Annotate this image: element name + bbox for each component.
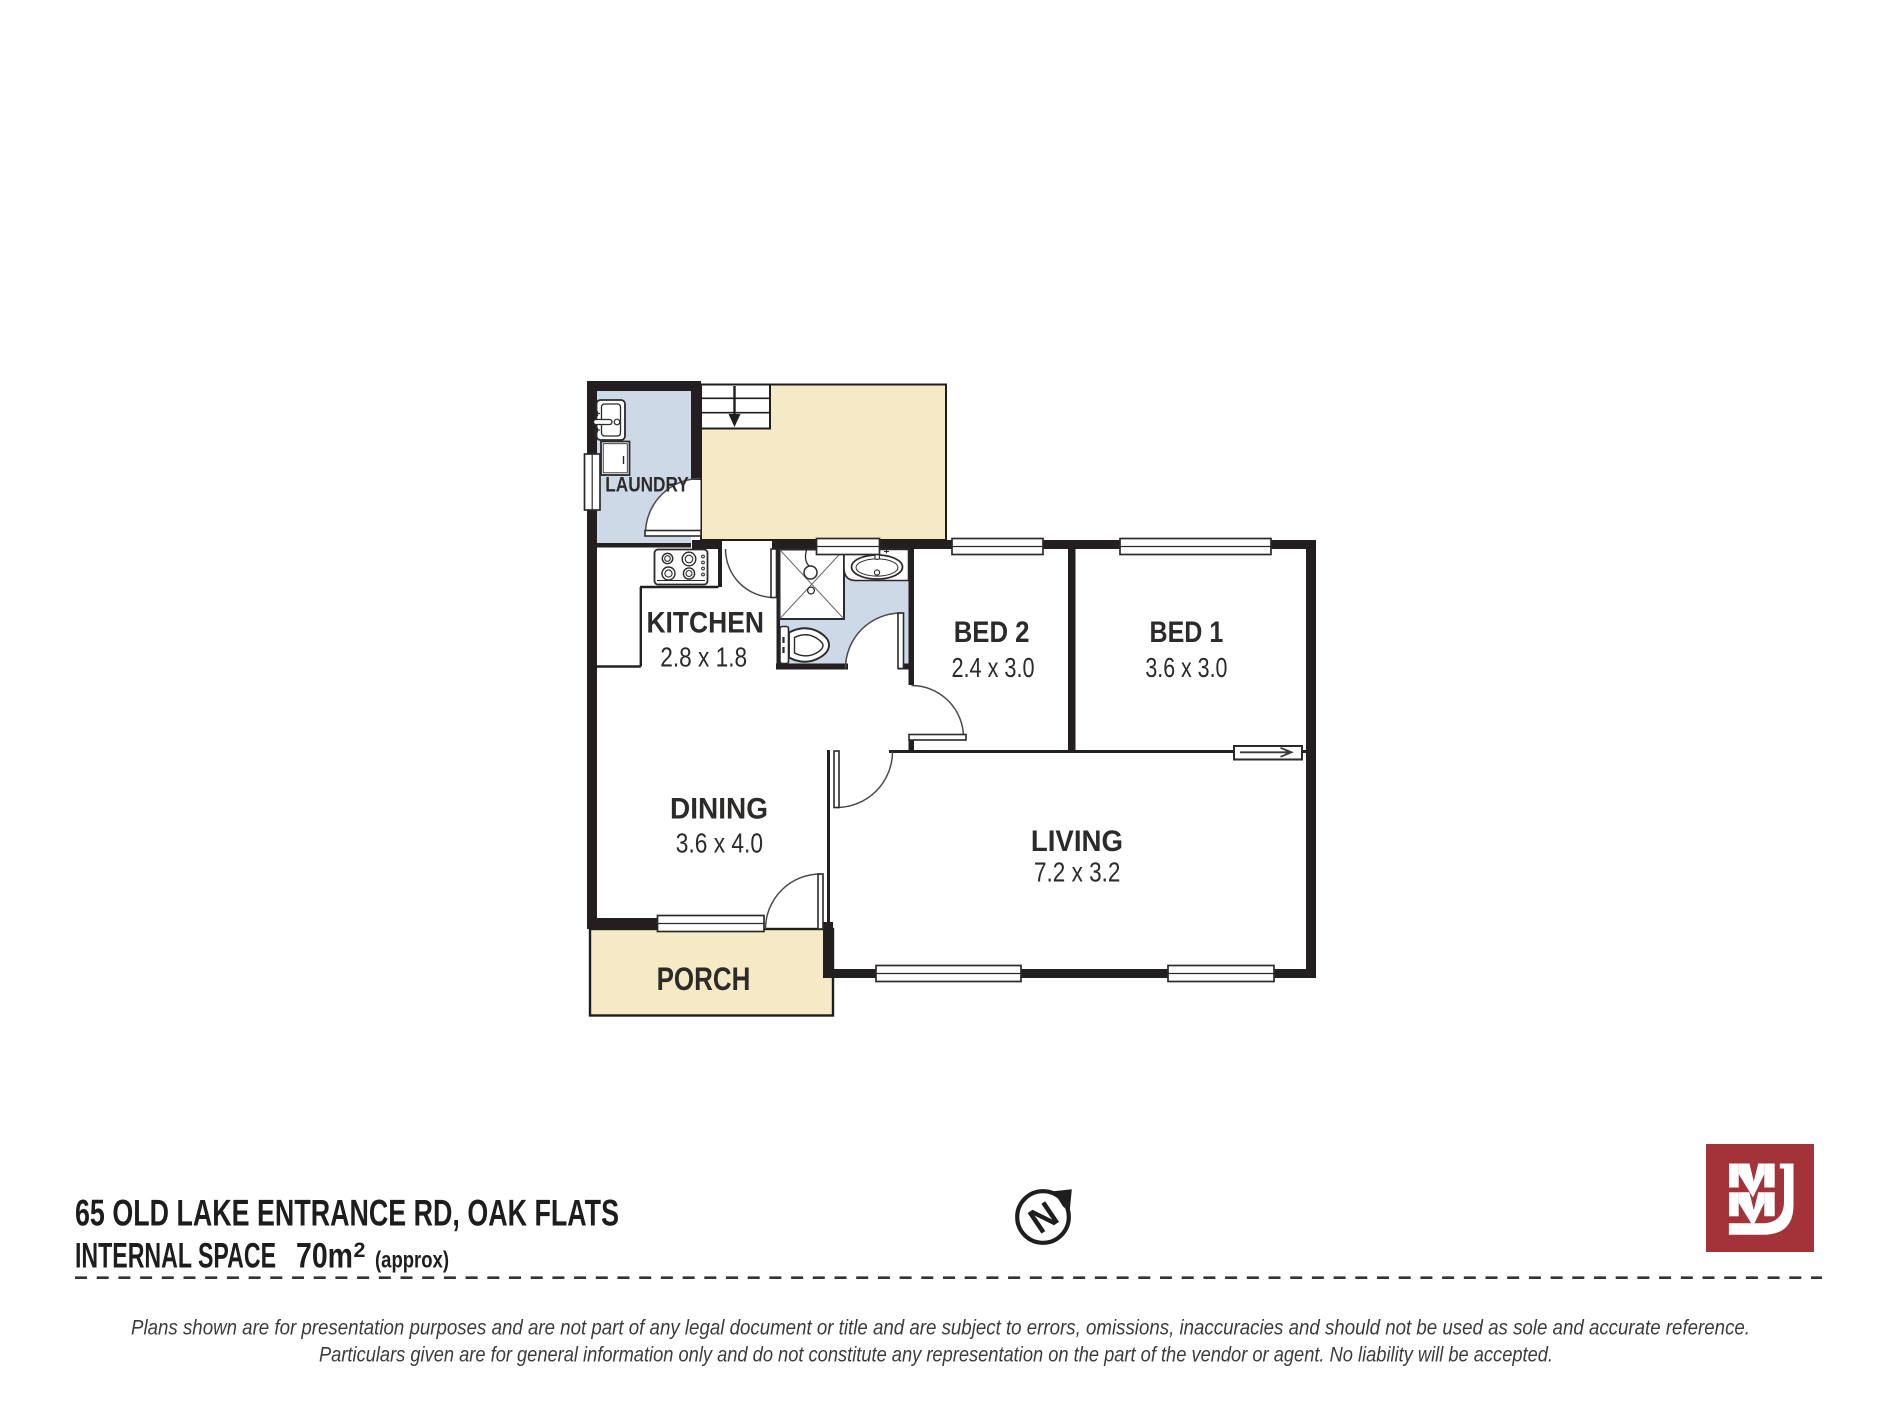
svg-text:Plans shown are for presentati: Plans shown are for presentation purpose… bbox=[131, 1316, 1750, 1340]
svg-text:3.6 x 3.0: 3.6 x 3.0 bbox=[1145, 652, 1227, 683]
svg-text:2: 2 bbox=[354, 1238, 366, 1262]
svg-text:KITCHEN: KITCHEN bbox=[646, 606, 764, 639]
svg-text:65 OLD LAKE ENTRANCE RD, OAK F: 65 OLD LAKE ENTRANCE RD, OAK FLATS bbox=[75, 1193, 619, 1234]
svg-text:3.6 x 4.0: 3.6 x 4.0 bbox=[676, 828, 763, 859]
svg-text:70m: 70m bbox=[296, 1237, 353, 1276]
svg-text:2.4 x 3.0: 2.4 x 3.0 bbox=[951, 652, 1034, 683]
svg-text:BED 1: BED 1 bbox=[1150, 616, 1224, 649]
svg-text:DINING: DINING bbox=[670, 792, 768, 825]
svg-text:LIVING: LIVING bbox=[1031, 825, 1123, 858]
svg-text:INTERNAL SPACE: INTERNAL SPACE bbox=[75, 1237, 276, 1276]
svg-text:Particulars given are for gene: Particulars given are for general inform… bbox=[319, 1343, 1553, 1367]
svg-text:7.2 x 3.2: 7.2 x 3.2 bbox=[1034, 857, 1120, 888]
svg-text:2.8 x 1.8: 2.8 x 1.8 bbox=[660, 642, 747, 673]
svg-text:PORCH: PORCH bbox=[657, 961, 751, 997]
svg-text:BED 2: BED 2 bbox=[954, 616, 1030, 649]
svg-text:LAUNDRY: LAUNDRY bbox=[605, 473, 689, 496]
svg-text:(approx): (approx) bbox=[375, 1247, 449, 1273]
